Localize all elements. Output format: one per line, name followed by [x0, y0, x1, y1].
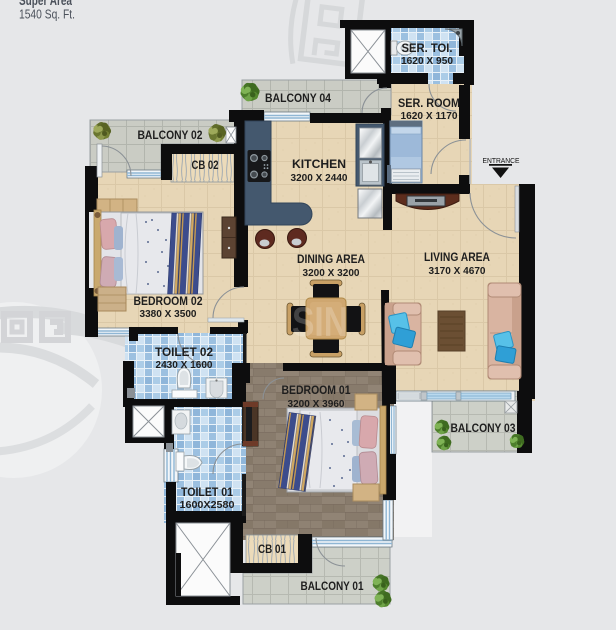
svg-text:BEDROOM 01: BEDROOM 01 [282, 385, 352, 397]
svg-text:1540 Sq. Ft.: 1540 Sq. Ft. [19, 7, 75, 22]
svg-text:SER. TOI.: SER. TOI. [402, 43, 453, 55]
svg-text:3380 X 3500: 3380 X 3500 [140, 308, 197, 320]
svg-text:ENTRANCE: ENTRANCE [483, 156, 520, 165]
svg-text:CB 01: CB 01 [258, 544, 287, 556]
svg-text:CB 02: CB 02 [192, 160, 219, 172]
svg-text:DINING AREA: DINING AREA [297, 254, 365, 266]
svg-text:1620 X 1170: 1620 X 1170 [401, 110, 458, 122]
svg-text:BALCONY 02: BALCONY 02 [138, 130, 203, 142]
svg-text:3200 X 3960: 3200 X 3960 [288, 398, 345, 410]
svg-text:3170 X 4670: 3170 X 4670 [429, 265, 486, 277]
svg-text:KITCHEN: KITCHEN [292, 159, 346, 171]
svg-text:BALCONY 01: BALCONY 01 [301, 581, 365, 593]
svg-text:1600X2580: 1600X2580 [180, 499, 235, 511]
svg-text:SIN: SIN [292, 298, 348, 345]
svg-text:SER. ROOM: SER. ROOM [398, 98, 460, 110]
svg-text:LIVING AREA: LIVING AREA [424, 252, 490, 264]
svg-text:BALCONY 04: BALCONY 04 [265, 93, 332, 105]
svg-text:BALCONY 03: BALCONY 03 [451, 423, 516, 435]
svg-text:2430 X 1600: 2430 X 1600 [156, 359, 213, 371]
svg-text:TOILET 02: TOILET 02 [155, 347, 213, 359]
svg-text:1620 X 950: 1620 X 950 [401, 55, 453, 67]
svg-text:BEDROOM 02: BEDROOM 02 [134, 296, 203, 308]
svg-text:3200 X 2440: 3200 X 2440 [291, 172, 348, 184]
svg-text:3200 X 3200: 3200 X 3200 [303, 267, 360, 279]
svg-text:TOILET 01: TOILET 01 [181, 487, 234, 499]
